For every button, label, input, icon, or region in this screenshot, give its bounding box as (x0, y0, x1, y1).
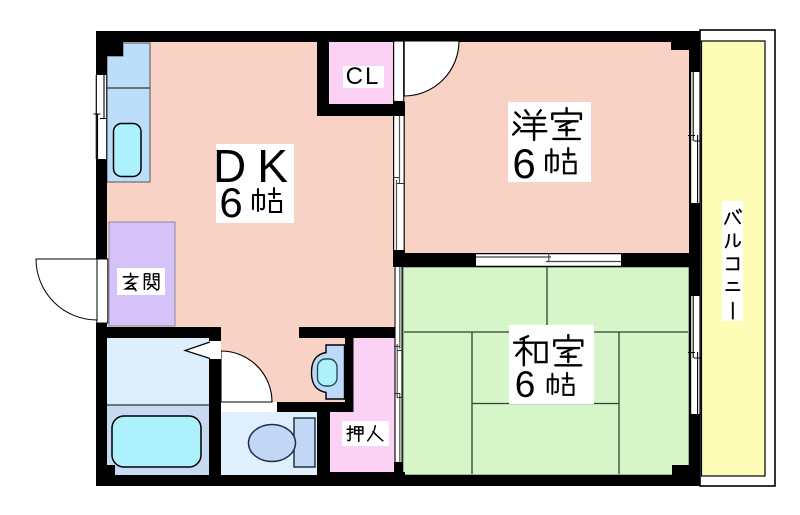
svg-text:CL: CL (346, 63, 381, 90)
svg-text:6: 6 (219, 179, 242, 226)
svg-text:6: 6 (512, 140, 535, 187)
svg-text:6: 6 (515, 364, 536, 405)
